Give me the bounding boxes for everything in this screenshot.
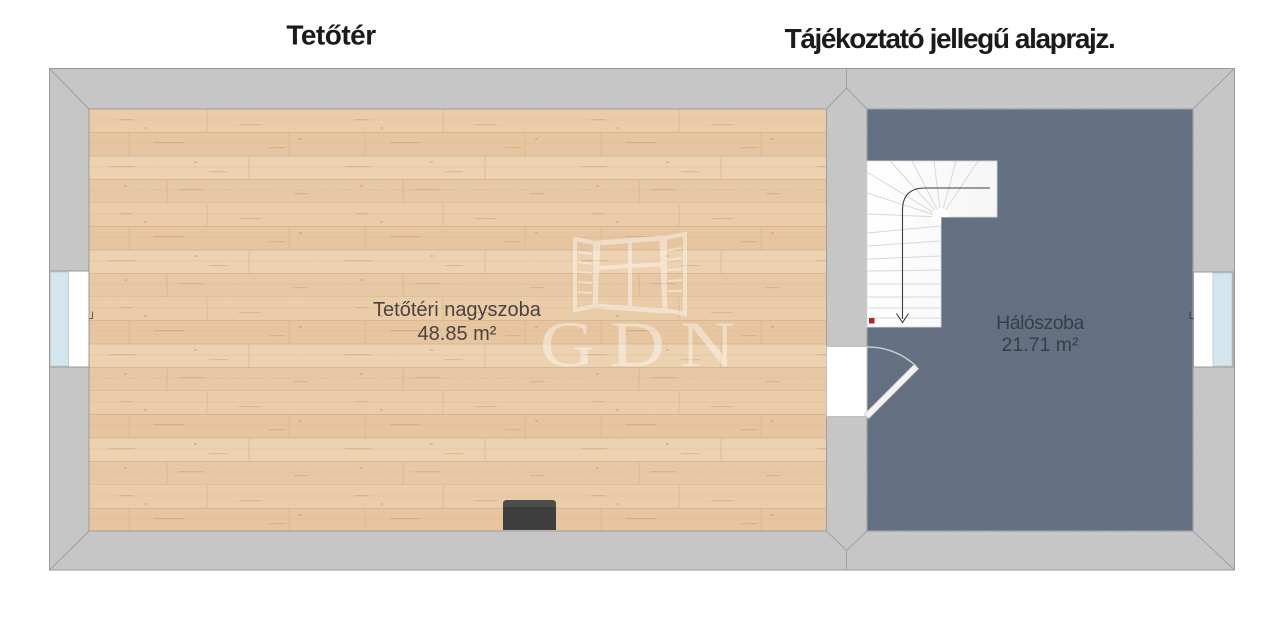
svg-text:Hálószoba: Hálószoba <box>996 312 1084 334</box>
svg-text:48.85 m²: 48.85 m² <box>418 323 497 345</box>
svg-text:Tetőtéri nagyszoba: Tetőtéri nagyszoba <box>373 299 542 321</box>
svg-text:Tájékoztató jellegű alaprajz.: Tájékoztató jellegű alaprajz. <box>785 23 1115 54</box>
svg-text:21.71 m²: 21.71 m² <box>1002 334 1079 356</box>
svg-text:G: G <box>540 309 595 381</box>
svg-text:N: N <box>680 309 735 381</box>
svg-text:D: D <box>610 309 665 381</box>
svg-text:Tetőtér: Tetőtér <box>286 20 376 51</box>
